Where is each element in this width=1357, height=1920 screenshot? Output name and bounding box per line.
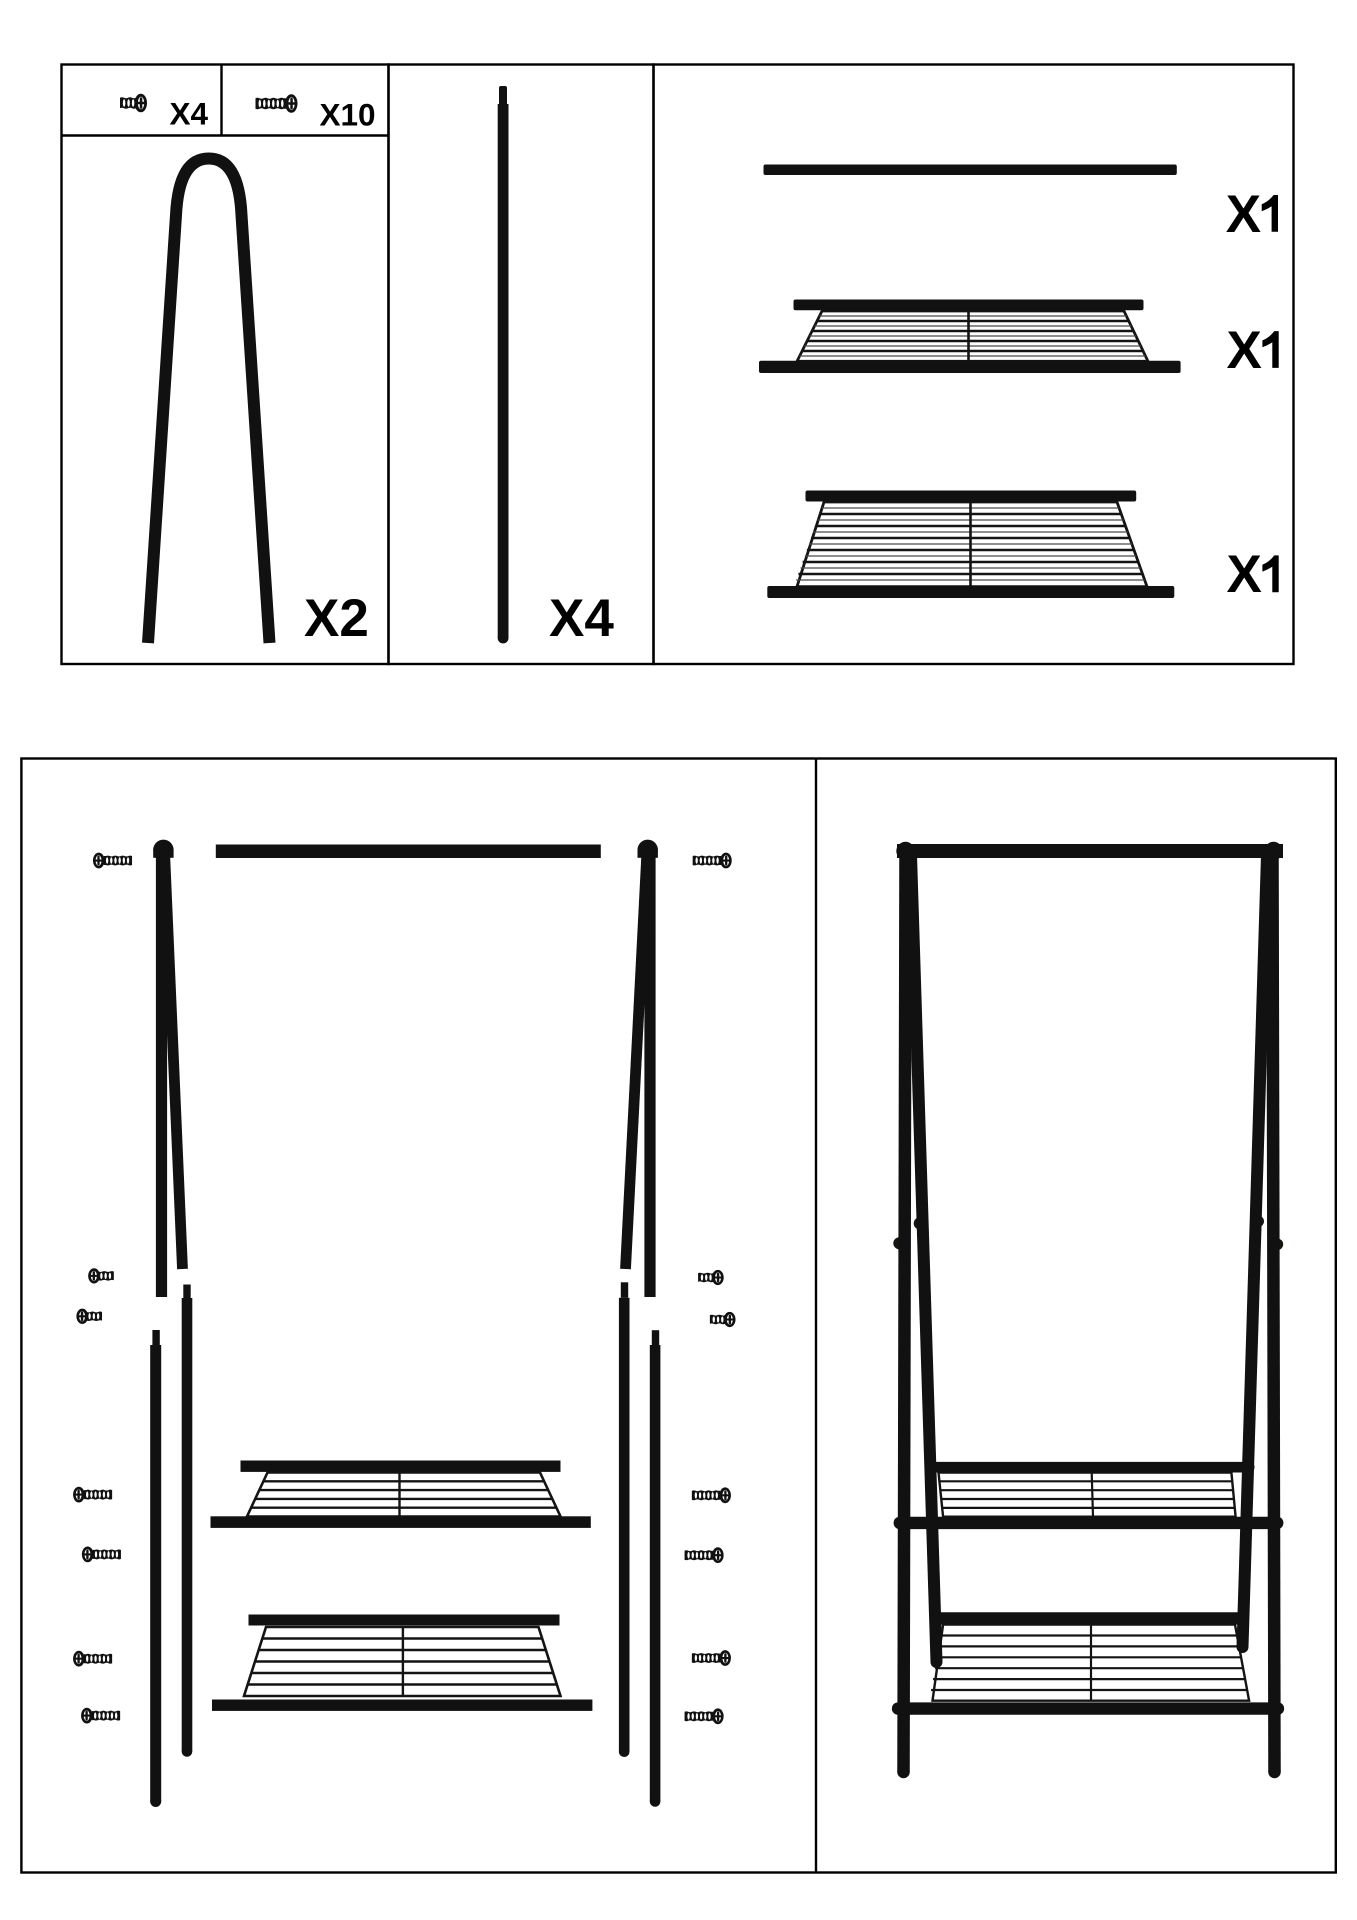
svg-text:X: X: [1227, 545, 1262, 604]
svg-text:X2: X2: [304, 589, 369, 648]
svg-text:X: X: [1227, 321, 1262, 380]
svg-text:X4: X4: [169, 96, 208, 132]
svg-text:X: X: [1226, 185, 1261, 244]
svg-text:X4: X4: [549, 589, 614, 648]
svg-text:X10: X10: [319, 97, 375, 133]
